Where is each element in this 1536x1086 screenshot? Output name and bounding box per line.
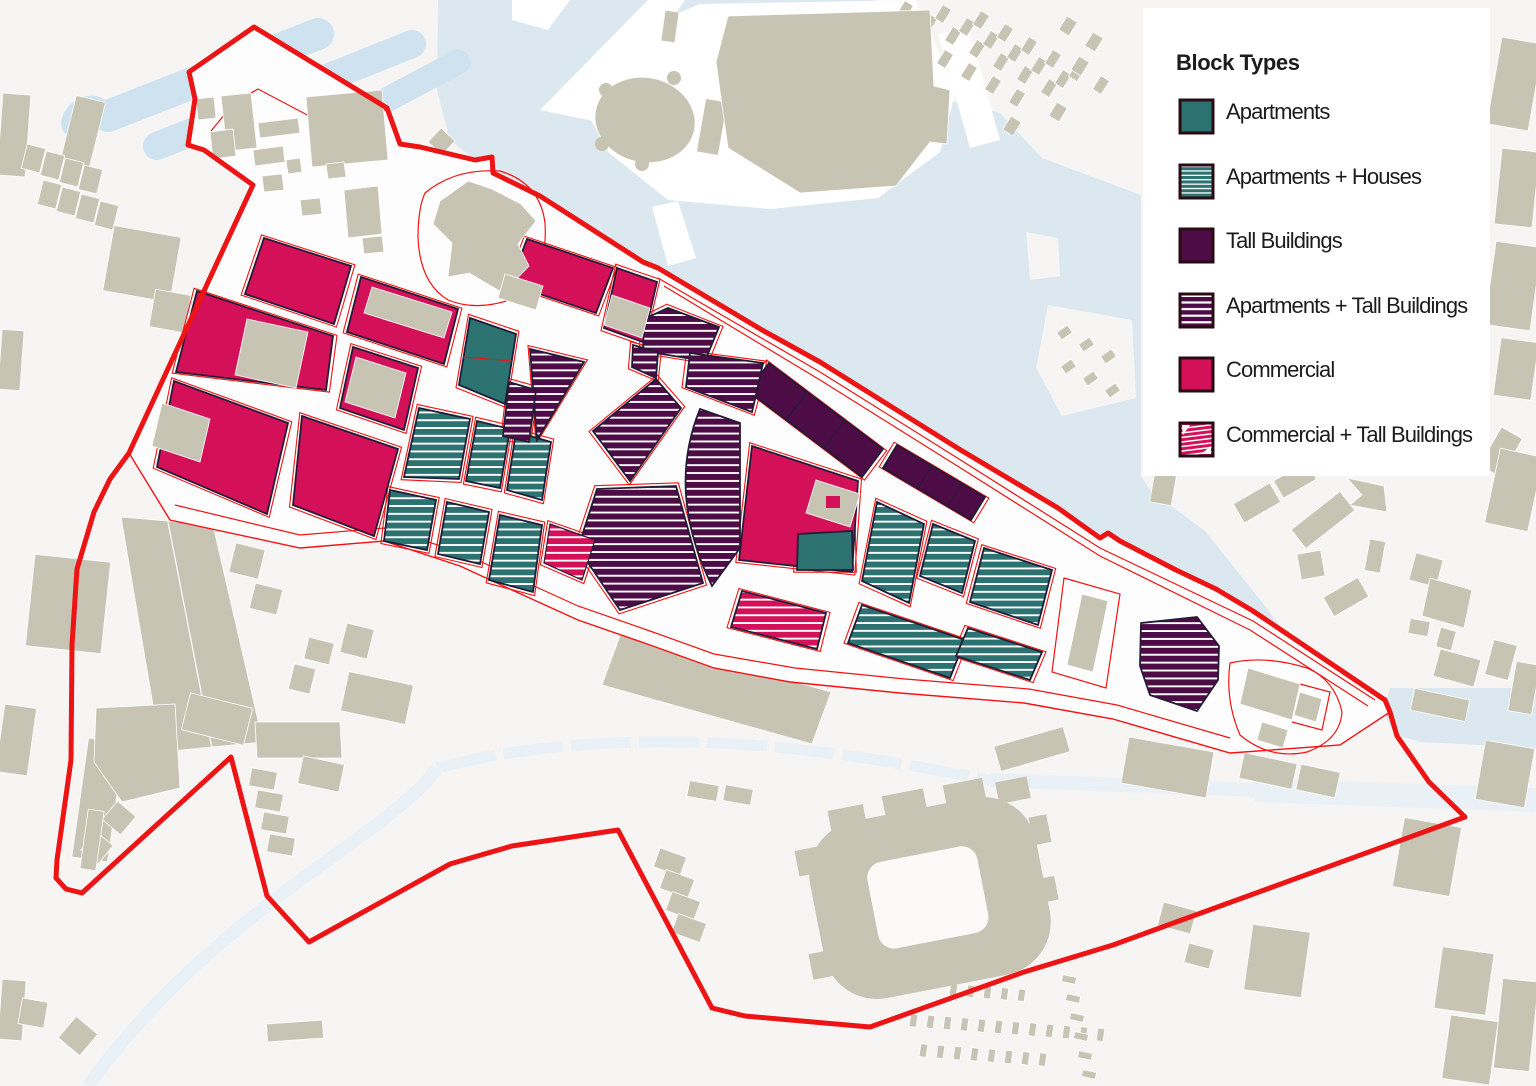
svg-text:Apartments + Houses: Apartments + Houses	[1226, 164, 1422, 189]
svg-text:Block Types: Block Types	[1176, 50, 1300, 75]
svg-text:Apartments + Tall Buildings: Apartments + Tall Buildings	[1226, 293, 1468, 318]
svg-text:Commercial: Commercial	[1226, 357, 1334, 382]
svg-text:Tall Buildings: Tall Buildings	[1226, 228, 1343, 253]
svg-text:Apartments: Apartments	[1226, 99, 1330, 124]
svg-text:Commercial + Tall Buildings: Commercial + Tall Buildings	[1226, 422, 1473, 447]
